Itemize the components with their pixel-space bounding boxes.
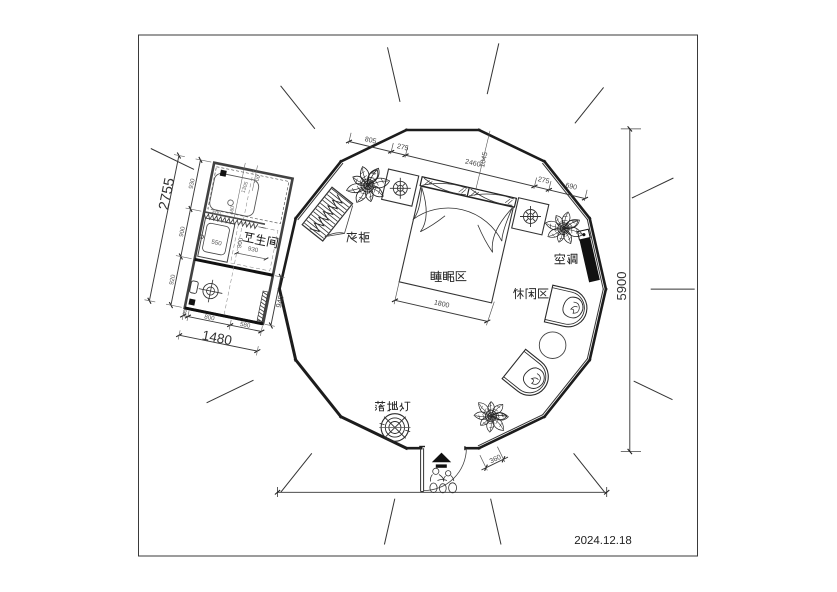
svg-text:5900: 5900: [614, 272, 629, 301]
svg-text:2024.12.18: 2024.12.18: [574, 535, 632, 547]
